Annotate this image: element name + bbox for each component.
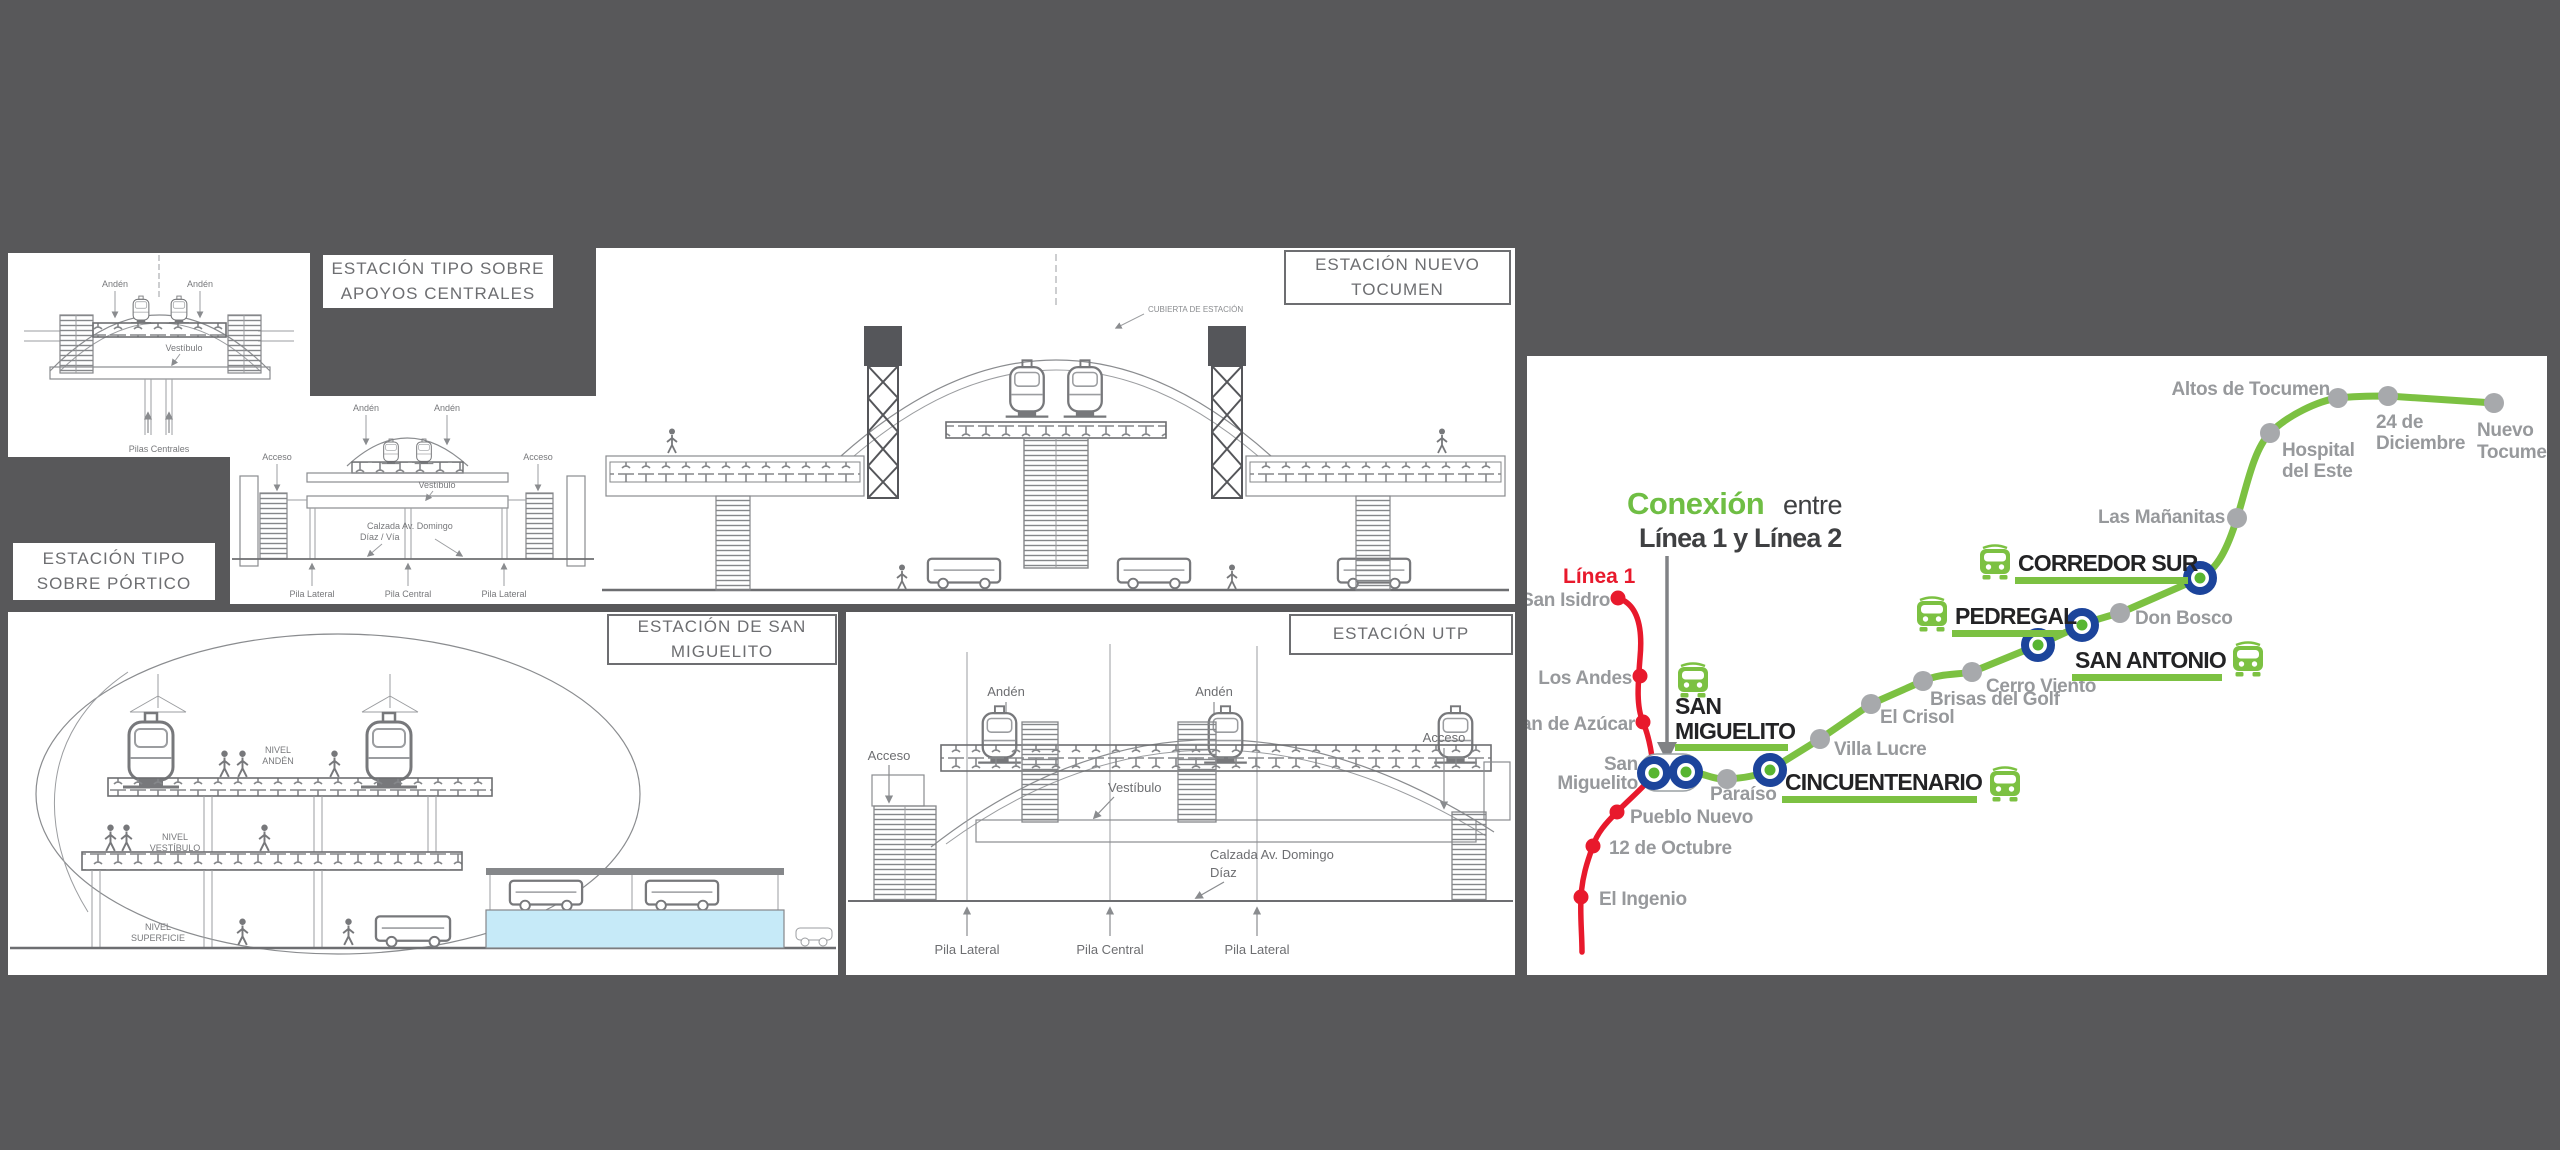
nivel-vestibulo-2: VESTÍBULO [150,843,201,853]
dot-brisas-del-golf [1913,671,1933,691]
calzada-arrow [1196,882,1224,898]
access-shaft-left [716,496,750,590]
canopy-right [362,674,418,712]
line1-label: Línea 1 [1563,565,1636,588]
panel-nuevo-tocumen: CUBIERTA DE ESTACIÓN [596,248,1515,604]
pila-central-label: Pila Central [1076,942,1143,957]
person-vestibule-2 [121,825,132,851]
lower-pillars [92,870,322,948]
dot-cincuentenario [1757,757,1783,783]
dot-cerro-viento [1962,662,1982,682]
bus-bay-1 [510,881,582,910]
label-pan-de-azucar: Pan de Azúcar [1527,714,1636,735]
label-san-miguelito-gray-2: Miguelito [1557,773,1638,794]
label-san-miguelito-major-2: MIGUELITO [1675,718,1795,744]
title-nuevo-tocumen: ESTACIÓN NUEVO TOCUMEN [1284,250,1511,305]
bus-2 [1118,559,1190,588]
label-los-andes: Los Andes [1538,668,1632,689]
train-right [361,713,417,787]
label-corredor-sur: CORREDOR SUR [2018,550,2199,576]
access-escalator-right [1452,812,1486,901]
canopy-left [130,674,186,712]
connection-rest: entre [1783,490,1842,520]
dot-pan-de-azucar [1636,715,1651,730]
car [796,928,832,946]
bus-1 [928,559,1000,588]
vestibulo-label: Vestíbulo [1108,780,1162,795]
underline-san-antonio [2072,674,2222,681]
anden-right-label: Andén [434,403,460,413]
title-tipo-apoyos-centrales: ESTACIÓN TIPO SOBRE APOYOS CENTRALES [323,255,553,308]
train-left [382,439,401,464]
dot-12-de-octubre [1586,839,1601,854]
dot-san-miguelito-interchange-left [1641,760,1667,786]
pila-central-label: Pila Central [385,589,432,599]
calzada-arrow-right [435,539,462,556]
person-ground-2 [343,919,354,945]
dot-hospital-del-este [2260,423,2280,443]
label-nuevo-tocumen-1: Nuevo [2477,420,2534,441]
label-san-antonio: SAN ANTONIO [2075,647,2226,673]
nivel-superficie-1: NIVEL [145,922,171,932]
title-utp: ESTACIÓN UTP [1289,614,1513,655]
train-left [1006,360,1049,416]
bus-bay-roof [486,868,784,875]
nivel-vestibulo-1: NIVEL [162,832,188,842]
panel-san-miguelito: NIVEL ANDÉN NIVEL VESTÍBULO NIVEL SUPERF… [8,612,838,975]
cubierta-label: CUBIERTA DE ESTACIÓN [1148,305,1243,314]
guideway-left-girders [610,462,860,482]
title-san-miguelito: ESTACIÓN DE SAN MIGUELITO [607,614,837,665]
pila-lateral-left-label: Pila Lateral [934,942,999,957]
calzada-line1: Calzada Av. Domingo [1210,847,1334,862]
vestibule-slab [307,496,508,508]
deck-slab [307,473,508,482]
access-box-right [567,476,585,566]
person-4 [1437,429,1447,454]
person-vestibule-3 [259,825,270,851]
title-text: ESTACIÓN NUEVO TOCUMEN [1286,253,1509,302]
label-cincuentenario: CINCUENTENARIO [1785,769,1982,795]
title-text: ESTACIÓN TIPO SOBRE APOYOS CENTRALES [323,257,553,306]
dot-villa-lucre [1810,729,1830,749]
pila-lateral-right-label: Pila Lateral [1224,942,1289,957]
nivel-anden-1: NIVEL [265,745,291,755]
connection-line2: Línea 1 y Línea 2 [1639,523,1842,553]
bus-bay-2 [646,881,718,910]
bus-street [376,916,450,946]
acceso-left-label: Acceso [868,748,911,763]
panel-line-map: Conexión entre Línea 1 y Línea 2 Línea 1 [1527,356,2547,975]
underline-cincuentenario [1782,796,1977,803]
metro-icon-corredor-sur [1980,546,2010,580]
label-paraiso: Paraíso [1710,784,1777,805]
panel-tipo-portico: Andén Andén Vestíbulo Acceso Acceso [230,396,596,604]
anden-left-label: Andén [353,403,379,413]
person-platform-1 [219,751,230,777]
anden-deck [108,778,492,796]
dot-don-bosco [2110,603,2130,623]
pillars [310,508,507,559]
metro-icon-san-antonio [2233,643,2263,677]
label-hospital-1: Hospital [2282,440,2355,461]
lattice-left [868,366,898,498]
underline-corredor-sur [2015,577,2188,584]
dot-pueblo-nuevo [1610,805,1625,820]
anden-right-label: Andén [1195,684,1233,699]
escalator-core-1 [1022,722,1058,822]
label-las-mananitas: Las Mañanitas [2098,507,2225,528]
person-platform-2 [237,751,248,777]
panel-utp: Andén Andén Vestíbulo Acceso Acceso [846,612,1515,975]
central-pillars [145,379,172,435]
metro-icon-pedregal [1917,598,1947,632]
calzada-line1: Calzada Av. Domingo [367,521,453,531]
label-altos-de-tocumen: Altos de Tocumen [2172,379,2330,400]
drawing-san-miguelito: NIVEL ANDÉN NIVEL VESTÍBULO NIVEL SUPERF… [8,612,838,975]
line-map: Conexión entre Línea 1 y Línea 2 Línea 1 [1527,356,2547,975]
dot-las-mananitas [2227,508,2247,528]
access-box-left [872,775,924,806]
underline-san-miguelito [1675,744,1788,751]
acceso-right-label: Acceso [1423,730,1466,745]
drawing-utp: Andén Andén Vestíbulo Acceso Acceso [846,612,1515,975]
roof-block-right [1208,326,1246,366]
calzada-line2: Díaz [1210,865,1237,880]
label-san-isidro: San Isidro [1527,590,1610,611]
title-text: ESTACIÓN UTP [1333,622,1469,647]
calzada-arrow-left [368,544,382,556]
dot-24-de-diciembre [2378,386,2398,406]
escalator-core-2 [1178,722,1216,822]
person-2 [1227,565,1237,590]
anden-left-label: Andén [102,279,128,289]
title-text: ESTACIÓN DE SAN MIGUELITO [609,615,835,664]
label-el-ingenio: El Ingenio [1599,889,1687,910]
person-platform-3 [329,751,340,777]
label-san-miguelito-gray-1: San [1604,754,1638,775]
person-1 [897,565,907,590]
platform-girders [946,422,1166,438]
dot-san-isidro [1611,591,1626,606]
label-12-de-octubre: 12 de Octubre [1609,838,1732,859]
slide: Andén Andén Vestíbulo Pilas Centrales ES… [0,0,2560,1150]
label-hospital-2: del Este [2282,461,2352,482]
train-left [131,296,151,322]
anden-left-label: Andén [987,684,1025,699]
access-box-left [240,476,258,566]
label-pedregal: PEDREGAL [1955,603,2077,629]
label-pueblo-nuevo: Pueblo Nuevo [1630,807,1753,828]
platform-girders [93,323,226,337]
cyan-slab [486,910,784,948]
cubierta-arrow [1116,314,1144,328]
pila-lateral-left-label: Pila Lateral [289,589,334,599]
vestibulo-arrow [1094,797,1114,818]
label-24-de-diciembre-1: 24 de [2376,412,2423,433]
dot-san-miguelito-interchange-right [1673,759,1699,785]
upper-pillars [204,796,436,852]
train-right [1064,360,1107,416]
drawing-tipo-portico: Andén Andén Vestíbulo Acceso Acceso [230,396,596,604]
label-24-de-diciembre-2: Diciembre [2376,433,2465,454]
calzada-line2: Díaz / Vía [360,532,400,542]
dot-altos-de-tocumen [2328,388,2348,408]
person-ground-1 [237,919,248,945]
platform-girders [352,462,463,473]
label-el-crisol: El Crisol [1880,707,1954,728]
dot-los-andes [1633,669,1648,684]
label-villa-lucre: Villa Lucre [1834,739,1926,760]
acceso-left-label: Acceso [262,452,292,462]
train-right [169,296,189,322]
metro-icon-cincuentenario [1990,768,2020,802]
train-left [123,713,179,787]
escalator-right [526,493,553,559]
pilas-centrales-label: Pilas Centrales [129,444,190,454]
person-vestibule-1 [105,825,116,851]
title-text: ESTACIÓN TIPO SOBRE PÓRTICO [13,547,215,596]
acceso-right-label: Acceso [523,452,553,462]
label-don-bosco: Don Bosco [2135,608,2233,629]
pila-lateral-right-label: Pila Lateral [481,589,526,599]
dot-el-ingenio [1574,890,1589,905]
nivel-anden-2: ANDÉN [262,756,294,766]
vestibule-deck [82,852,462,870]
dot-el-crisol [1861,694,1881,714]
escalator-left [260,493,287,559]
label-san-miguelito-major-1: SAN [1675,693,1721,719]
guideway-right-girders [1250,462,1501,482]
label-nuevo-tocumen-2: Tocumen [2477,442,2547,463]
title-tipo-portico: ESTACIÓN TIPO SOBRE PÓRTICO [13,543,215,600]
vestibule-slab [976,820,1476,842]
vestibulo-label: Vestíbulo [418,480,455,490]
nivel-superficie-2: SUPERFICIE [131,933,185,943]
roof-block-left [864,326,902,366]
person-3 [667,429,677,454]
underline-pedregal [1952,630,2064,637]
vestibulo-arrow [172,354,180,365]
dot-nuevo-tocumen [2484,393,2504,413]
access-shaft-right [1356,496,1390,590]
anden-right-label: Andén [187,279,213,289]
connection-highlight: Conexión [1627,486,1764,521]
vestibulo-label: Vestíbulo [165,343,202,353]
